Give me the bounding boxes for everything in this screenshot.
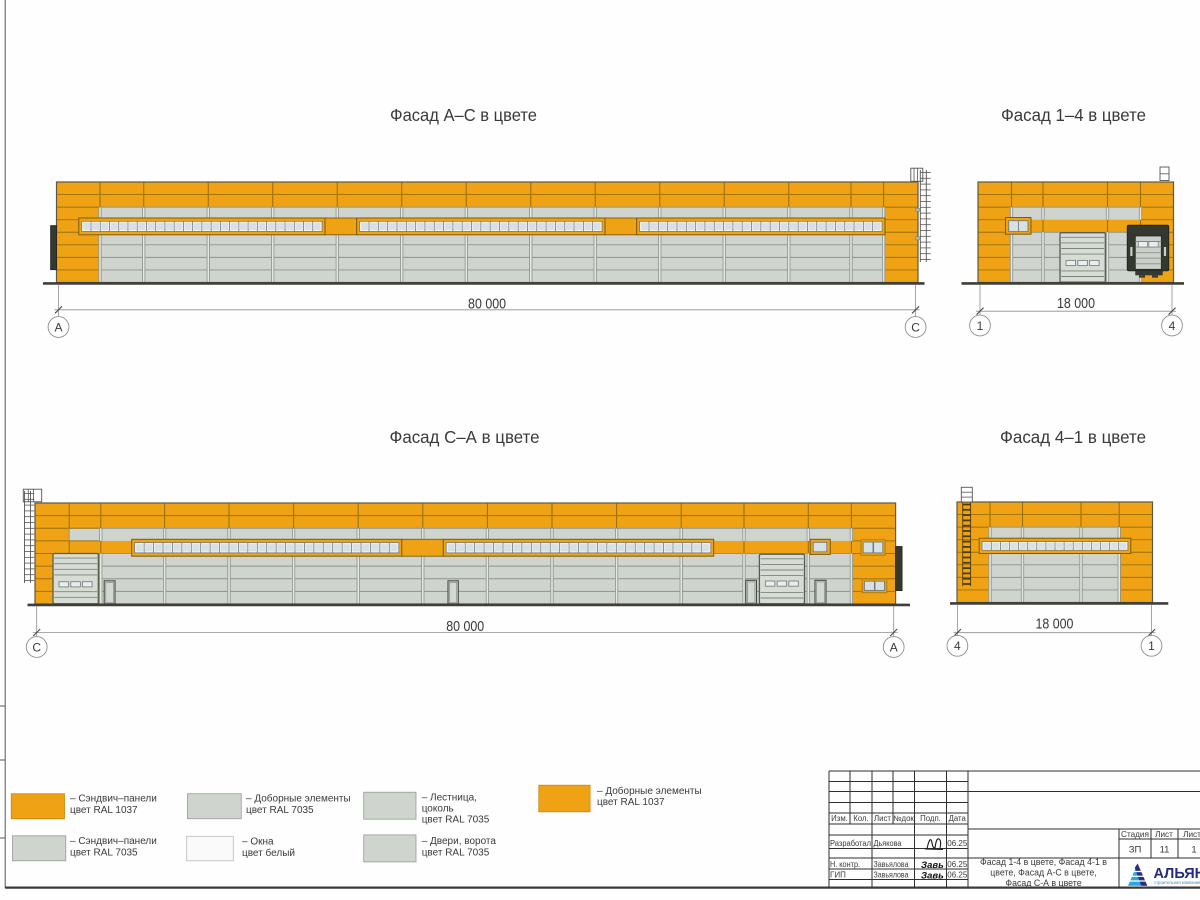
svg-text:Фасад 4–1 в цвете: Фасад 4–1 в цвете	[1000, 427, 1146, 447]
svg-text:Фасад А–С в цвете: Фасад А–С в цвете	[390, 105, 537, 125]
svg-text:1: 1	[1191, 845, 1196, 856]
svg-text:цвет RAL 1037: цвет RAL 1037	[597, 797, 665, 808]
svg-text:Фасад С-А в цвете: Фасад С-А в цвете	[1005, 878, 1081, 888]
svg-text:строительная компания: строительная компания	[1154, 880, 1200, 885]
svg-text:18 000: 18 000	[1057, 295, 1095, 312]
svg-text:1: 1	[1148, 639, 1155, 653]
svg-text:ГИП: ГИП	[830, 871, 846, 880]
svg-text:Дьякова: Дьякова	[874, 839, 902, 848]
svg-text:Фасад 1-4 в цвете, Фасад 4-1 в: Фасад 1-4 в цвете, Фасад 4-1 в	[980, 857, 1107, 867]
svg-text:цвет белый: цвет белый	[242, 847, 295, 859]
svg-text:06.25: 06.25	[947, 860, 968, 869]
svg-text:– Доборные элементы: – Доборные элементы	[597, 785, 702, 797]
svg-text:Лист: Лист	[1155, 830, 1173, 839]
svg-text:06.25: 06.25	[947, 839, 968, 848]
svg-text:Завьялова: Завьялова	[874, 860, 909, 869]
svg-text:Фасад С–А в цвете: Фасад С–А в цвете	[390, 427, 540, 447]
svg-text:Лист: Лист	[874, 814, 891, 823]
svg-text:Подп.: Подп.	[920, 814, 941, 823]
svg-text:18 000: 18 000	[1035, 616, 1073, 633]
svg-text:цвет RAL 1037: цвет RAL 1037	[70, 805, 138, 816]
svg-text:Стадия: Стадия	[1121, 830, 1149, 839]
svg-text:– Доборные элементы: – Доборные элементы	[246, 793, 351, 805]
svg-text:ЗП: ЗП	[1129, 845, 1142, 856]
svg-text:1: 1	[977, 319, 984, 333]
svg-text:цвете, Фасад А-С в цвете,: цвете, Фасад А-С в цвете,	[990, 867, 1097, 877]
svg-text:С: С	[911, 320, 920, 334]
svg-text:06.25: 06.25	[947, 871, 968, 880]
svg-text:№док: №док	[893, 814, 914, 823]
svg-text:С: С	[32, 640, 41, 654]
svg-text:А: А	[54, 320, 62, 334]
svg-text:Дата: Дата	[949, 814, 967, 823]
svg-text:4: 4	[1169, 319, 1176, 333]
svg-text:цвет RAL 7035: цвет RAL 7035	[246, 805, 314, 816]
svg-text:– Сэндвич–панели: – Сэндвич–панели	[70, 836, 157, 847]
svg-text:Кол.: Кол.	[853, 814, 868, 823]
svg-text:– Двери, ворота: – Двери, ворота	[422, 836, 497, 847]
svg-text:Фасад 1–4 в цвете: Фасад 1–4 в цвете	[1001, 105, 1146, 125]
svg-text:цоколь: цоколь	[422, 804, 454, 815]
svg-text:80 000: 80 000	[446, 618, 484, 635]
svg-text:цвет RAL 7035: цвет RAL 7035	[422, 847, 490, 858]
svg-text:4: 4	[954, 639, 961, 653]
svg-text:Лист: Лист	[1183, 830, 1200, 839]
svg-text:А: А	[890, 640, 898, 654]
svg-text:Завь: Завь	[921, 860, 944, 871]
svg-text:Изм.: Изм.	[831, 814, 848, 823]
svg-text:цвет RAL 7035: цвет RAL 7035	[70, 847, 138, 858]
svg-text:Н. контр.: Н. контр.	[830, 860, 860, 869]
svg-text:Завьялова: Завьялова	[874, 871, 909, 880]
svg-text:– Лестница,: – Лестница,	[422, 793, 477, 804]
svg-text:Завь: Завь	[921, 870, 944, 881]
svg-text:11: 11	[1160, 845, 1170, 856]
svg-text:– Окна: – Окна	[242, 836, 274, 847]
svg-text:– Сэндвич–панели: – Сэндвич–панели	[70, 794, 157, 805]
svg-text:Разработал: Разработал	[830, 839, 871, 848]
svg-text:цвет RAL 7035: цвет RAL 7035	[422, 815, 490, 826]
svg-text:80 000: 80 000	[468, 295, 506, 312]
